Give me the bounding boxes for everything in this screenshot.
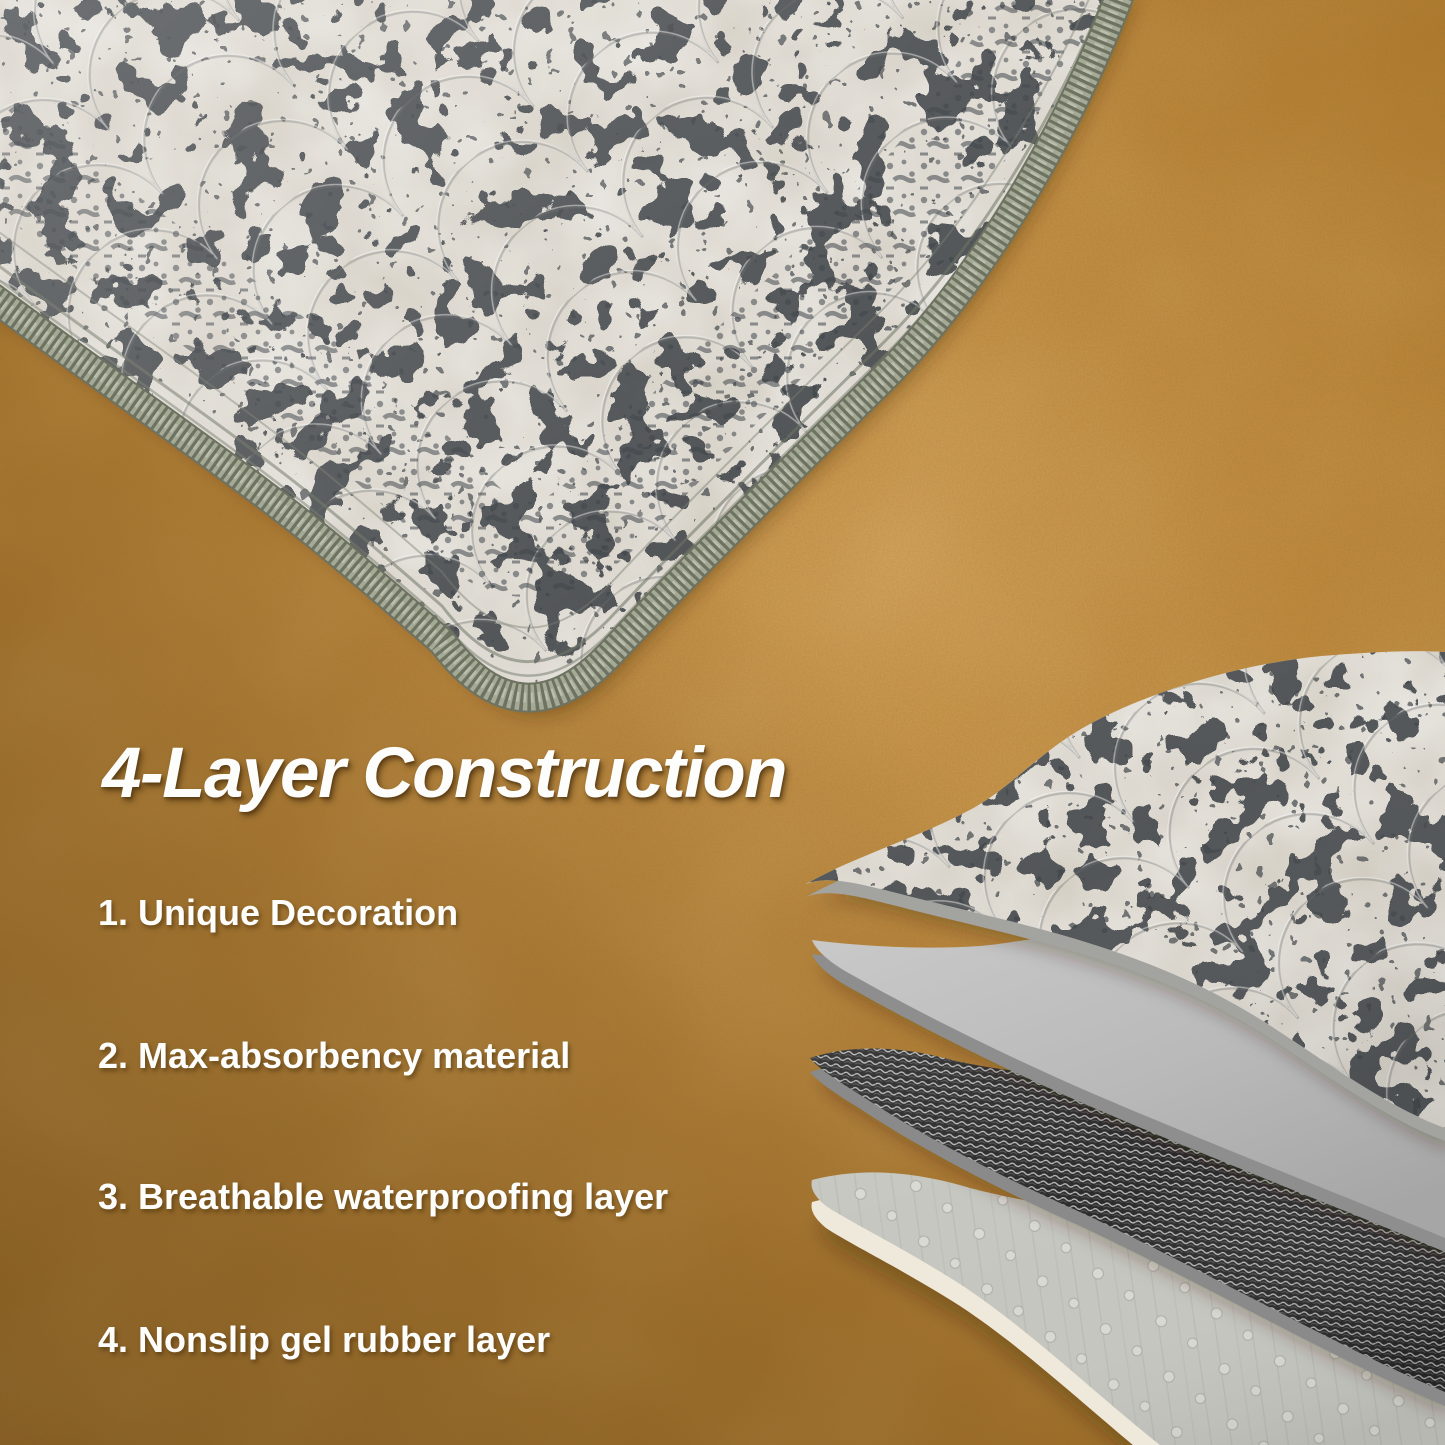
- feature-item-3: 3. Breathable waterproofing layer: [98, 1179, 668, 1215]
- feature-item-2: 2. Max-absorbency material: [98, 1038, 570, 1074]
- headline: 4-Layer Construction: [102, 738, 786, 809]
- feature-item-1: 1. Unique Decoration: [98, 895, 458, 931]
- feature-item-4: 4. Nonslip gel rubber layer: [98, 1322, 550, 1358]
- scene-illustration: [0, 0, 1445, 1445]
- product-infographic: 4-Layer Construction 1. Unique Decoratio…: [0, 0, 1445, 1445]
